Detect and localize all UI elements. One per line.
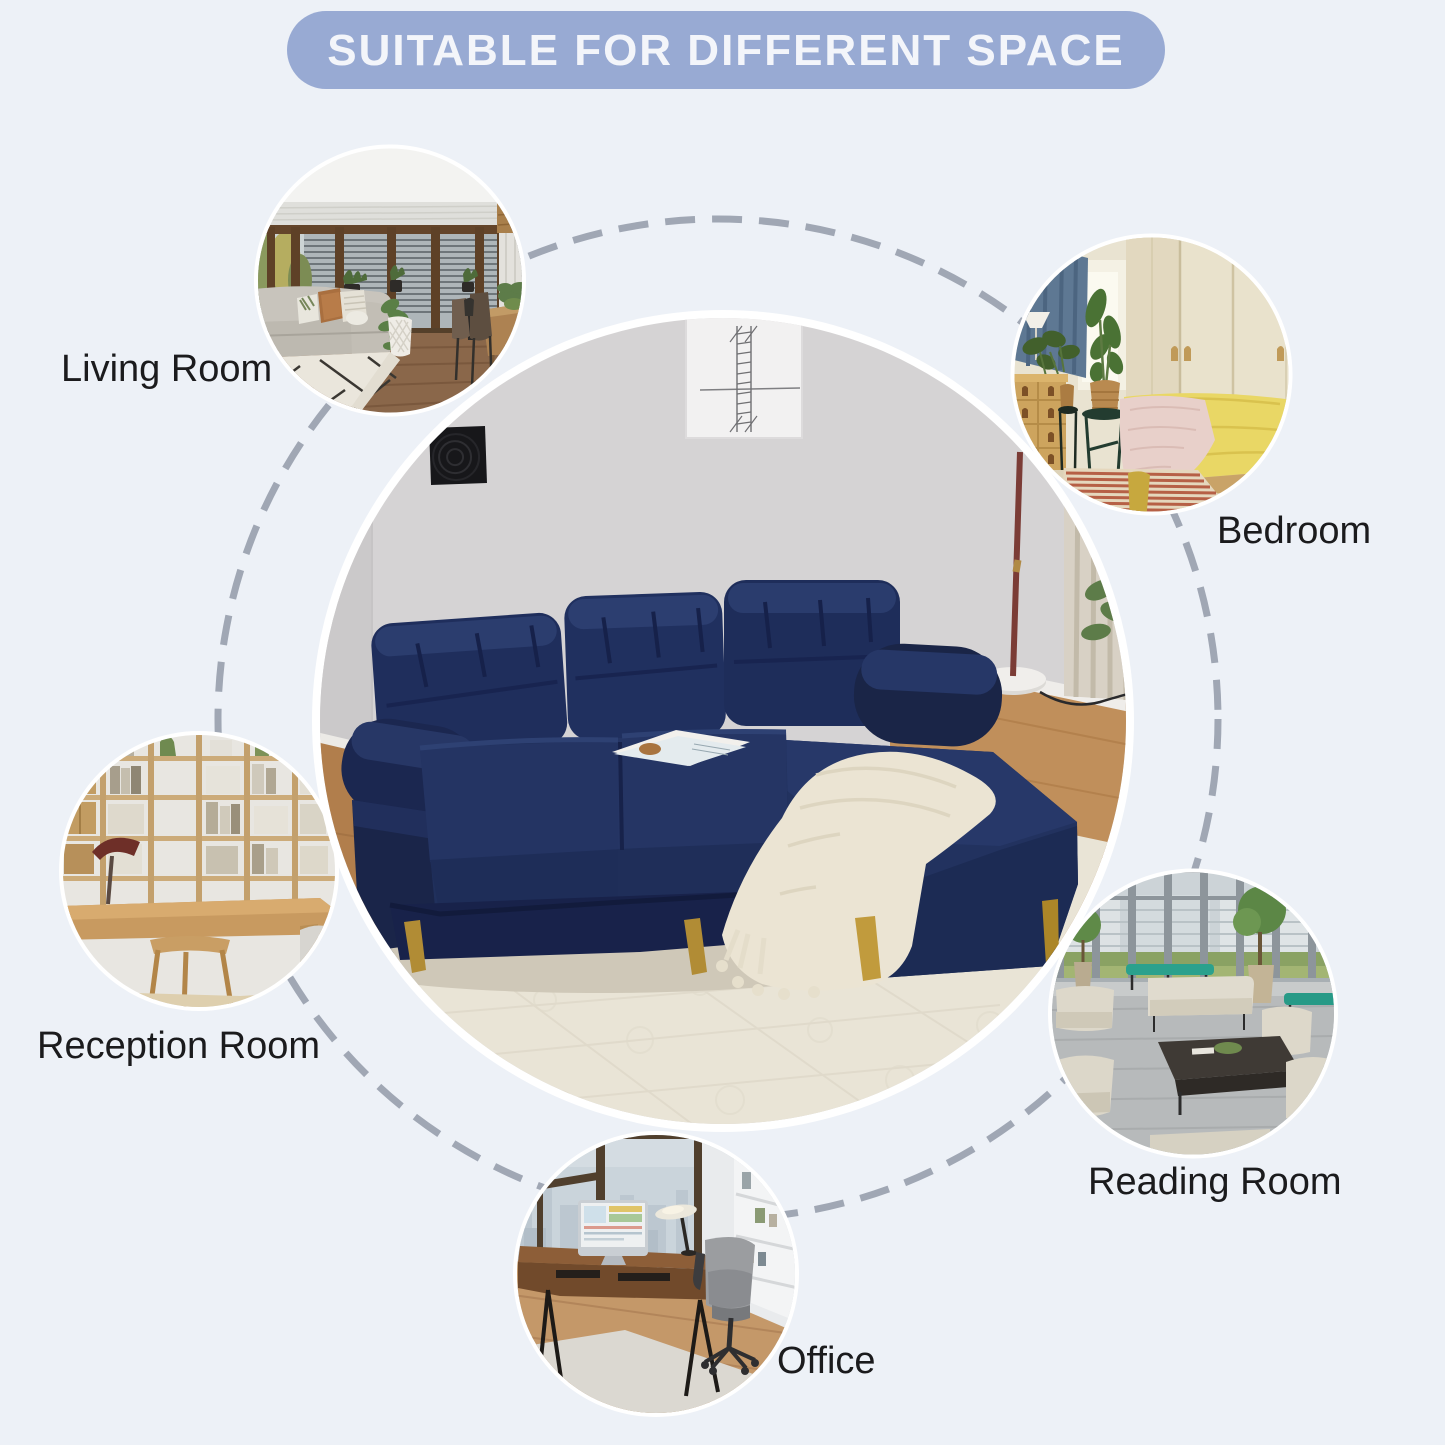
svg-text:Office: Office [777,1340,876,1382]
svg-text:Reception Room: Reception Room [37,1025,320,1067]
svg-text:Living Room: Living Room [61,348,272,390]
svg-text:Reading Room: Reading Room [1088,1161,1341,1203]
svg-text:SUITABLE FOR DIFFERENT SPACE: SUITABLE FOR DIFFERENT SPACE [327,26,1125,75]
svg-text:Bedroom: Bedroom [1217,510,1371,552]
